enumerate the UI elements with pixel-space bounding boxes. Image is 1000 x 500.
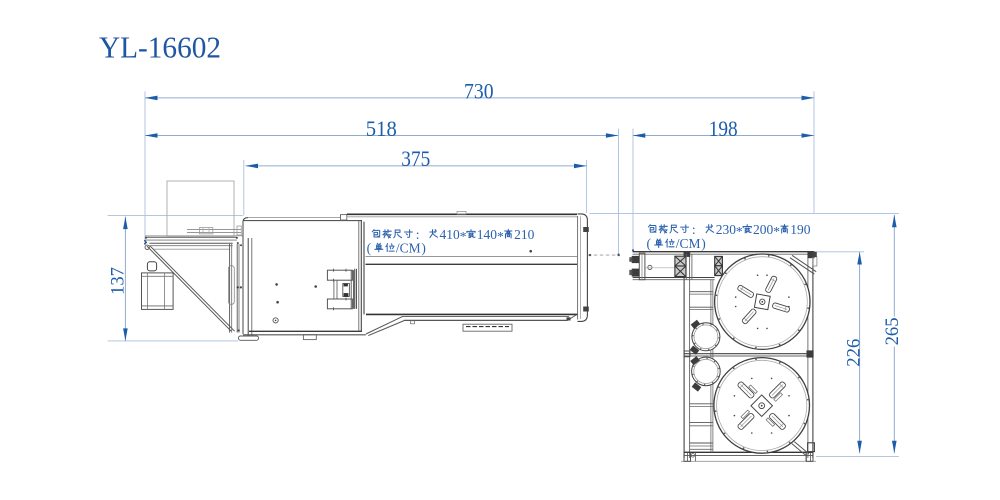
svg-text:): ) <box>701 236 706 251</box>
svg-text:200: 200 <box>753 222 774 237</box>
svg-text:190: 190 <box>790 222 811 237</box>
svg-text:*: * <box>773 224 780 239</box>
svg-text:/CM: /CM <box>676 236 701 251</box>
svg-text:210: 210 <box>514 227 535 242</box>
svg-text:(: ( <box>367 241 372 256</box>
svg-text:137: 137 <box>108 267 129 295</box>
svg-text:230: 230 <box>716 222 737 237</box>
svg-text:410: 410 <box>440 227 461 242</box>
svg-text:*: * <box>736 224 743 239</box>
svg-text:226: 226 <box>843 339 864 367</box>
svg-text:YL-16602: YL-16602 <box>99 30 221 65</box>
svg-text:): ) <box>421 241 426 256</box>
svg-text:730: 730 <box>464 78 494 103</box>
svg-text:140: 140 <box>477 227 498 242</box>
svg-text:375: 375 <box>401 146 430 171</box>
svg-text:518: 518 <box>366 116 397 141</box>
svg-text:265: 265 <box>882 317 903 345</box>
svg-text:198: 198 <box>709 116 738 141</box>
svg-text::: : <box>692 222 696 237</box>
svg-text:(: ( <box>647 236 652 251</box>
svg-text:/CM: /CM <box>396 241 421 256</box>
svg-text:*: * <box>497 229 504 244</box>
svg-text:*: * <box>460 229 467 244</box>
